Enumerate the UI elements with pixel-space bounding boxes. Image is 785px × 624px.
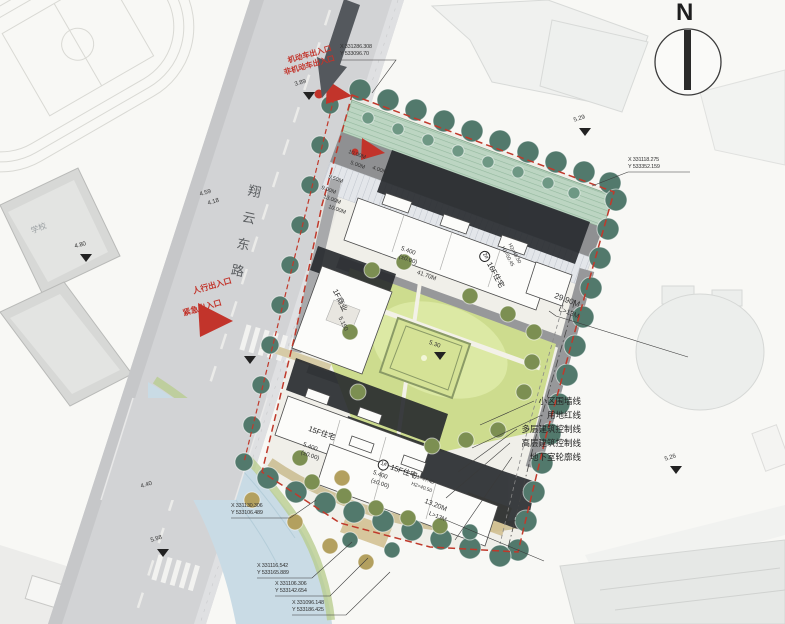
tree-icon [257,467,279,489]
tree-icon [564,335,586,357]
tree-icon [311,136,329,154]
coordinate-x: X 331116.542 [257,564,288,570]
site-plan-canvas: 翔云东路 机动车出入口 非机动车出入口 人行出入口 紧急出入口 小区围墙线 用地… [0,0,785,624]
tree-icon [349,79,371,101]
tree-icon [462,288,478,304]
tree-icon [524,354,540,370]
tree-icon [364,262,380,278]
coordinate-y: Y 533186.425 [292,608,324,614]
tree-icon [261,336,279,354]
coordinate-y: Y 533142.654 [275,589,307,595]
pavilion-center [421,355,427,361]
tree-icon [368,500,384,516]
tree-icon [452,145,464,157]
tree-icon [589,247,611,269]
tree-icon [424,438,440,454]
north-label: N [676,0,693,25]
coordinate-x: X 331118.275 [628,158,659,164]
legend-item-multistory-control: 多层建筑控制线 [495,423,581,435]
tree-icon [489,130,511,152]
tree-icon [458,432,474,448]
tree-icon [362,112,374,124]
north-arrow [655,29,721,95]
coordinate-x: X 331106.306 [275,582,306,588]
tree-icon [301,176,319,194]
tree-icon [556,364,578,386]
tree-icon [512,166,524,178]
tree-icon [285,481,307,503]
coordinate-y: Y 533096.70 [340,52,369,58]
tree-icon [542,177,554,189]
tree-icon [322,538,338,554]
tree-icon [252,376,270,394]
tree-icon [573,161,595,183]
tree-icon [597,218,619,240]
tree-icon [433,110,455,132]
tree-icon [358,554,374,570]
tree-icon [287,514,303,530]
tree-icon [334,470,350,486]
legend-item-wall-line: 小区围墙线 [495,395,581,407]
tree-icon [545,151,567,173]
tree-icon [523,481,545,503]
tree-icon [350,384,366,400]
site-plan-drawing [0,0,785,624]
context-building [636,294,764,410]
coordinate-y: Y 533352.159 [628,165,660,171]
tree-icon [243,416,261,434]
tree-icon [343,501,365,523]
legend-item-red-line: 用地红线 [495,409,581,421]
tree-icon [605,189,627,211]
coordinate-x: X 331286.308 [340,45,372,51]
tree-icon [489,545,511,567]
tree-icon [314,492,336,514]
tree-icon [271,296,289,314]
tree-icon [304,474,320,490]
tree-icon [405,99,427,121]
tree-icon [342,532,358,548]
tree-icon [422,134,434,146]
tree-icon [482,156,494,168]
tree-icon [392,123,404,135]
tree-icon [580,277,602,299]
tree-icon [400,510,416,526]
coordinate-x: X 331130.306 [231,504,262,510]
north-arrow-needle [684,30,691,90]
coordinate-y: Y 533106.489 [231,511,263,517]
tree-icon [500,306,516,322]
coordinate-x: X 331096.148 [292,601,324,607]
tree-icon [526,324,542,340]
tree-icon [568,187,580,199]
legend-item-highrise-control: 高层建筑控制线 [495,437,581,449]
tree-icon [235,453,253,471]
legend-item-basement-outline: 地下室轮廓线 [495,451,581,463]
tree-icon [384,542,400,558]
tree-icon [291,216,309,234]
coordinate-y: Y 533165.889 [257,571,289,577]
tree-icon [336,488,352,504]
tree-icon [281,256,299,274]
